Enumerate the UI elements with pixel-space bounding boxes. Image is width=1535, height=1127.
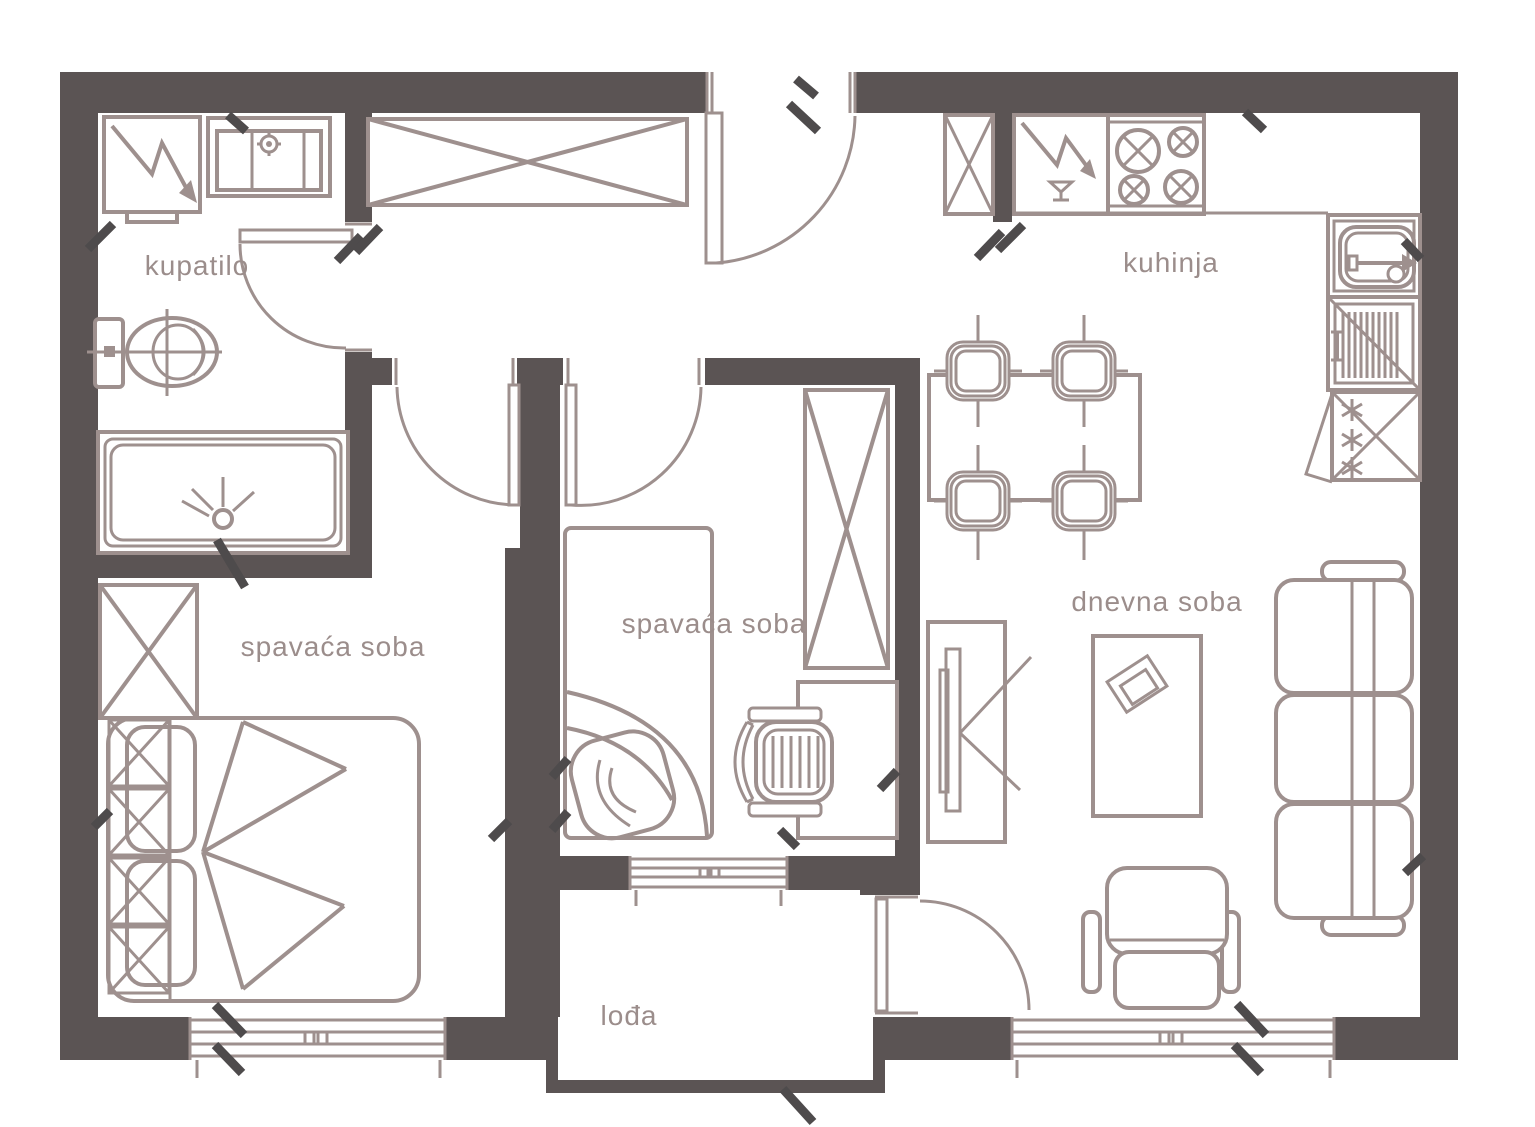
stove-icon (1108, 115, 1204, 214)
dish-rack-icon (1328, 297, 1420, 390)
floor-plan: kupatilo kuhinja spavaća soba spavaća so… (0, 0, 1535, 1127)
kitchen-sink-icon (1328, 215, 1420, 297)
kitchen-cabinet-icon (945, 115, 993, 214)
entrance-door-icon (706, 72, 855, 263)
refrigerator-icon (1306, 392, 1420, 482)
room-label-loggia: lođa (601, 1000, 658, 1032)
bedroom-middle-window-icon (630, 856, 787, 906)
room-label-living-room: dnevna soba (1071, 586, 1242, 618)
hallway-wardrobe-icon (368, 119, 687, 205)
room-label-bedroom-left: spavaća soba (241, 631, 426, 663)
floor-plan-drawing (0, 0, 1535, 1127)
single-bed-icon (564, 528, 712, 845)
bedroom-left-window-icon (190, 1017, 445, 1078)
bedroom-left-door-icon (396, 358, 519, 505)
sofa-icon (1276, 562, 1412, 935)
bedroom-middle-wardrobe-icon (805, 390, 888, 668)
living-room-window-icon (1012, 1017, 1334, 1078)
office-chair-icon (735, 708, 832, 816)
balcony-door-icon (875, 897, 1029, 1013)
bedroom-middle-door-icon (566, 358, 701, 505)
tv-stand-icon (928, 622, 1031, 842)
double-bed-icon (108, 718, 419, 1001)
coffee-table-icon (1093, 636, 1201, 816)
shower-tray-icon (98, 432, 348, 553)
bedroom-left-wardrobe-icon (100, 585, 197, 718)
room-label-bathroom: kupatilo (145, 250, 250, 282)
toilet-icon (87, 309, 222, 396)
dishwasher-icon (1014, 115, 1109, 214)
washing-machine-icon (104, 117, 200, 222)
armchair-icon (1083, 868, 1239, 1008)
room-label-kitchen: kuhinja (1123, 247, 1219, 279)
room-label-bedroom-middle: spavaća soba (622, 608, 807, 640)
sink-icon (208, 118, 330, 196)
